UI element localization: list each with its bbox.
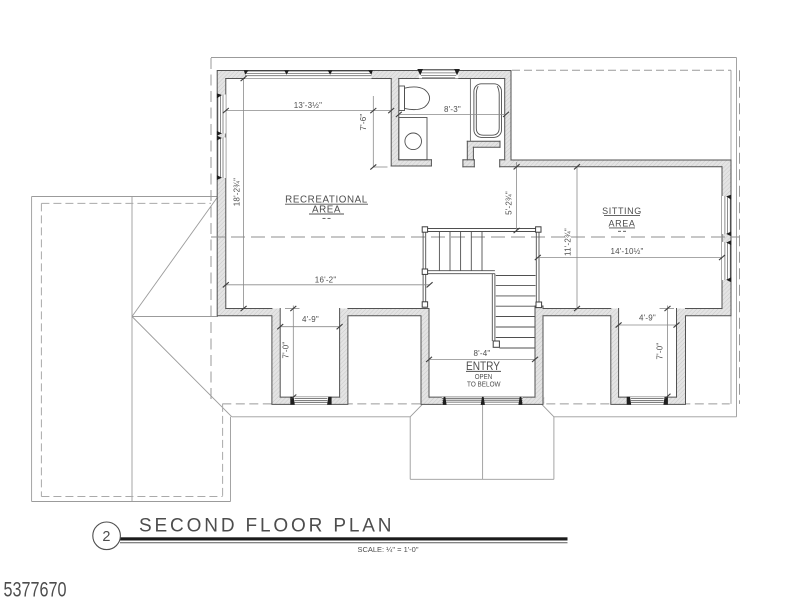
- svg-text:13'-3½": 13'-3½": [294, 101, 322, 110]
- svg-text:2: 2: [102, 529, 110, 545]
- svg-text:4'-9": 4'-9": [639, 314, 656, 323]
- svg-text:SECOND FLOOR PLAN: SECOND FLOOR PLAN: [139, 516, 394, 537]
- svg-text:AREA: AREA: [609, 218, 636, 228]
- svg-text:16'-2": 16'-2": [315, 276, 337, 285]
- svg-text:7'-0": 7'-0": [282, 342, 291, 359]
- svg-text:7'-6": 7'-6": [359, 114, 368, 131]
- svg-text:8'-3": 8'-3": [444, 105, 461, 114]
- svg-text:5377670: 5377670: [4, 579, 67, 600]
- svg-text:14'-10½": 14'-10½": [610, 247, 643, 256]
- svg-text:OPEN: OPEN: [475, 374, 493, 381]
- svg-text:5'-2¾": 5'-2¾": [505, 191, 514, 215]
- svg-text:18'-2¾": 18'-2¾": [233, 178, 242, 206]
- svg-text:ENTRY: ENTRY: [466, 359, 500, 373]
- svg-text:11'-2¾": 11'-2¾": [563, 228, 572, 256]
- svg-text:TO BELOW: TO BELOW: [467, 382, 501, 389]
- svg-text:4'-9": 4'-9": [302, 315, 319, 324]
- svg-text:SITTING: SITTING: [602, 206, 642, 216]
- svg-text:8'-4": 8'-4": [474, 349, 491, 358]
- svg-text:SCALE: ¼" = 1'-0": SCALE: ¼" = 1'-0": [358, 545, 419, 554]
- svg-text:7'-0": 7'-0": [655, 343, 664, 360]
